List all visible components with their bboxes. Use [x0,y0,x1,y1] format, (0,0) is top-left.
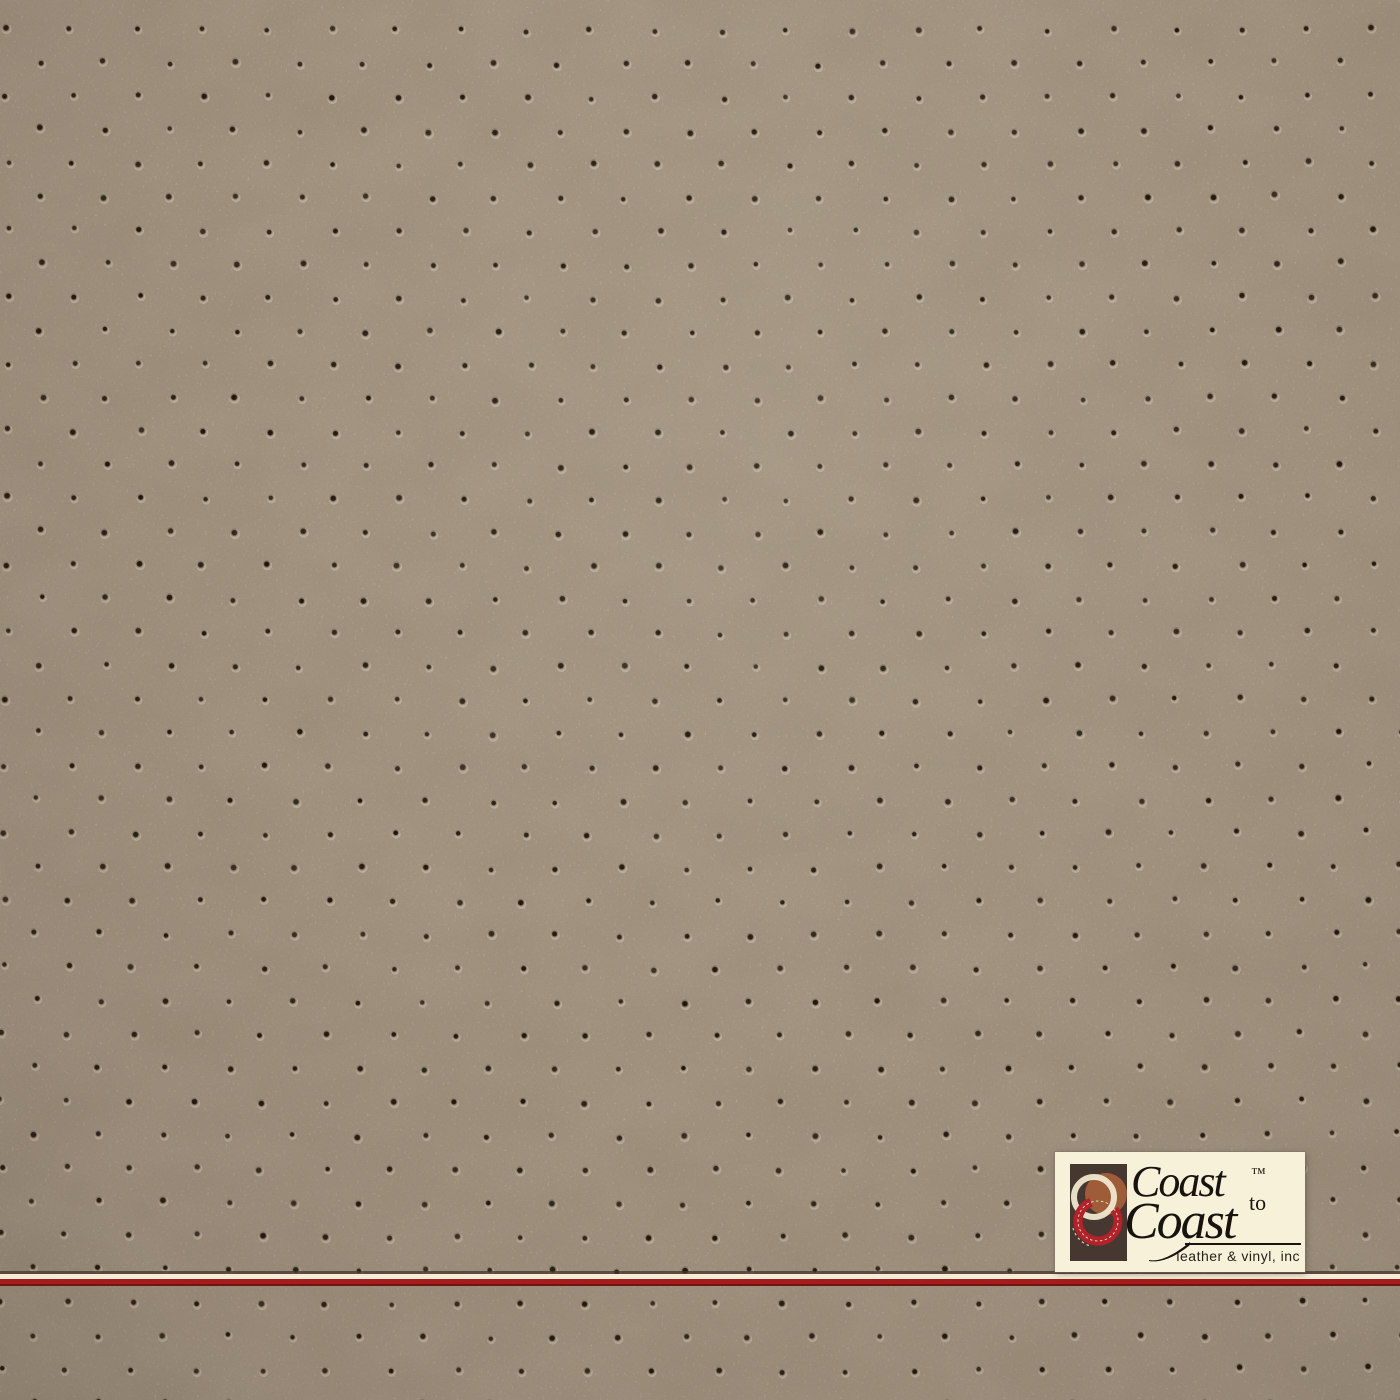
brand-logo-plaque: Coast ™ to Coast leather & vinyl, inc [1055,1152,1305,1272]
brand-tagline: leather & vinyl, inc [1153,1248,1300,1264]
leather-swatch-photo: Coast ™ to Coast leather & vinyl, inc [0,0,1400,1400]
logo-underline [1185,1243,1301,1245]
brand-word-to: to [1249,1192,1266,1214]
trademark-symbol: ™ [1251,1166,1266,1183]
stripe-red-line [0,1279,1400,1286]
brand-logo-mark-icon [1070,1164,1127,1261]
